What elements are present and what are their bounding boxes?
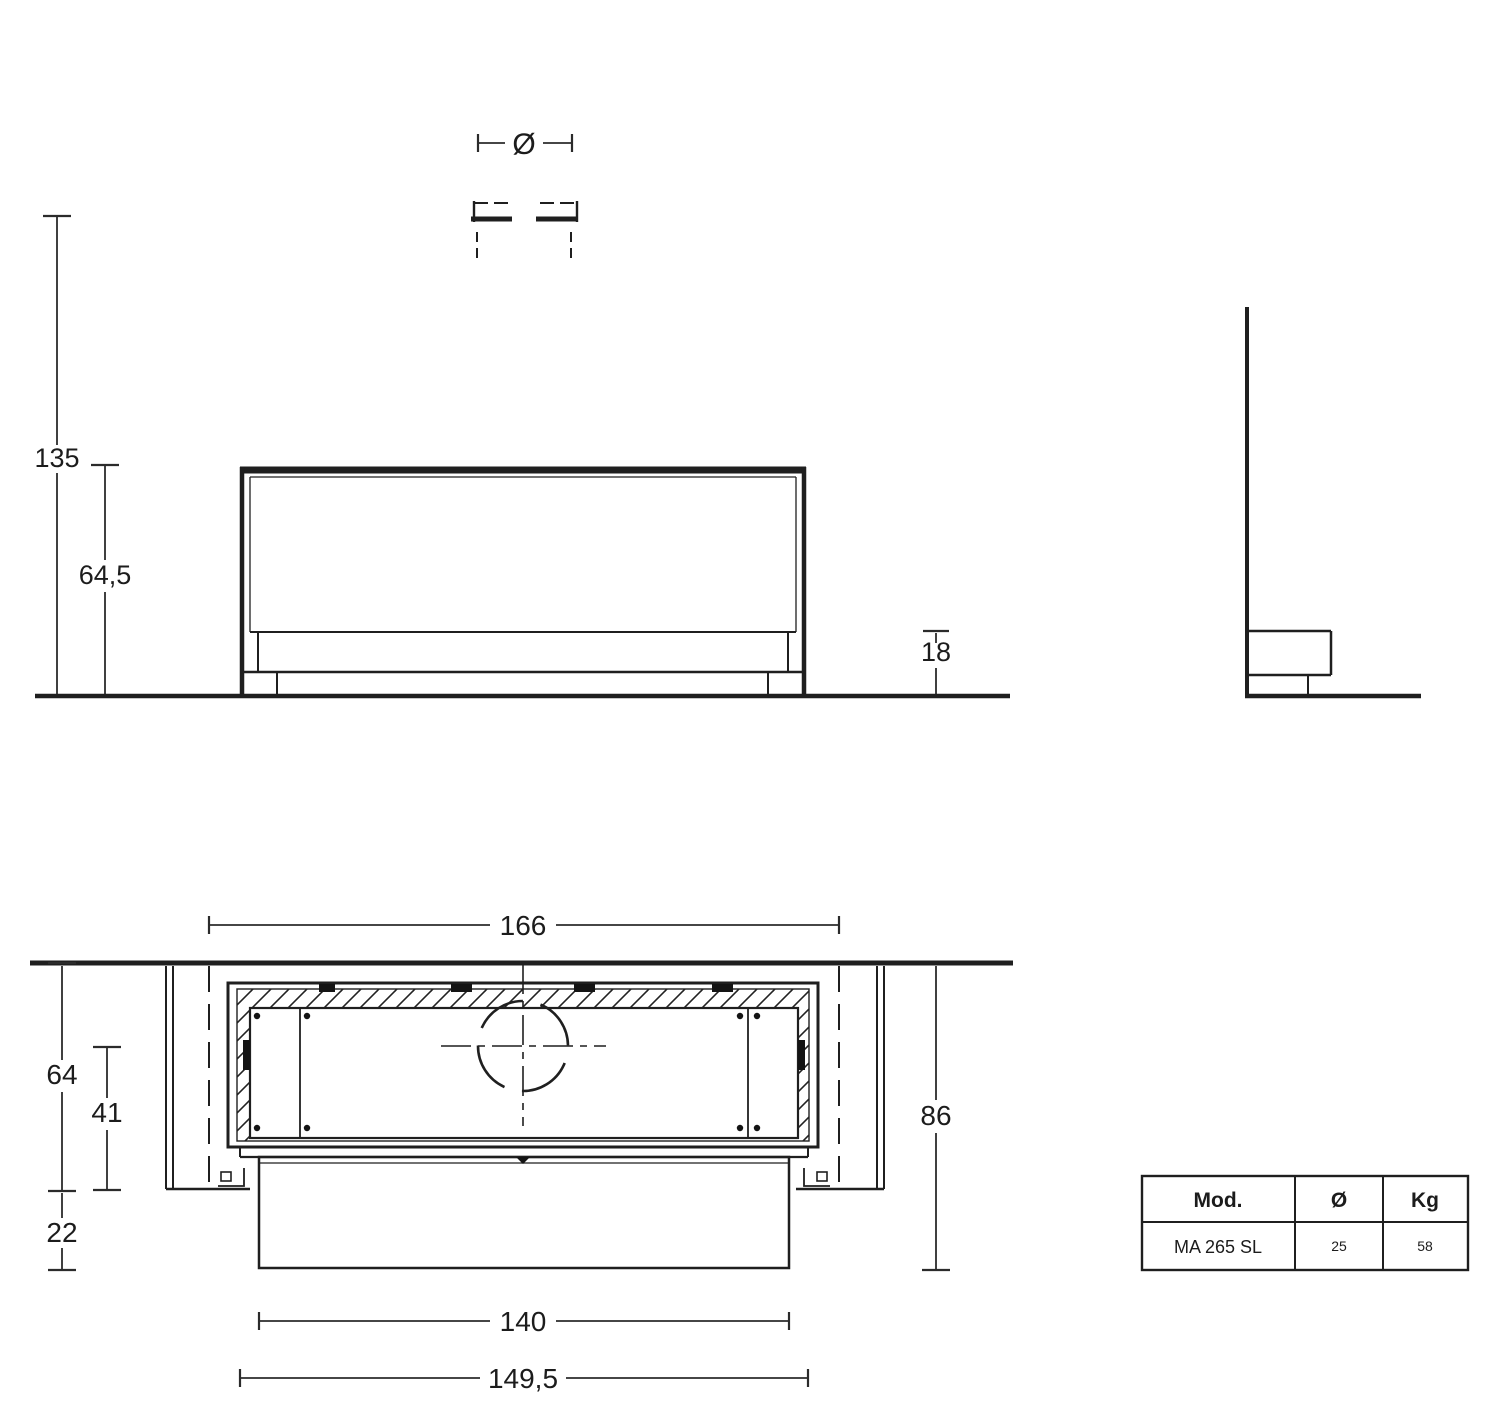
anchor-bracket-left bbox=[218, 1168, 244, 1186]
side-burner-box bbox=[1247, 631, 1331, 694]
dim-ceiling-height: 135 bbox=[34, 216, 79, 695]
table-header-kg: Kg bbox=[1411, 1189, 1439, 1212]
plan-view: 166 bbox=[30, 910, 1013, 1394]
table-cell-model: MA 265 SL bbox=[1174, 1237, 1262, 1257]
technical-drawing-page: Ø 135 64,5 bbox=[0, 0, 1500, 1427]
dim-unit-height: 64,5 bbox=[79, 465, 132, 695]
dim-recess-depth: 64 bbox=[46, 963, 77, 1191]
dim-total-depth-label: 86 bbox=[920, 1100, 951, 1131]
dim-total-depth: 86 bbox=[920, 966, 951, 1270]
dim-flue-diameter: Ø bbox=[478, 128, 572, 161]
table-cell-kg: 58 bbox=[1417, 1238, 1433, 1254]
dim-recess-depth-label: 64 bbox=[46, 1059, 77, 1090]
dim-frame-width: 149,5 bbox=[240, 1363, 808, 1394]
spec-table: Mod. Ø Kg MA 265 SL 25 58 bbox=[1142, 1176, 1468, 1270]
drawing-canvas: Ø 135 64,5 bbox=[0, 0, 1500, 1427]
dim-recess-width: 166 bbox=[209, 910, 839, 941]
plan-unit-body bbox=[218, 964, 830, 1268]
dim-front-protrusion-label: 22 bbox=[46, 1217, 77, 1248]
flue-diameter-label: Ø bbox=[512, 128, 535, 161]
front-unit-outline bbox=[240, 467, 806, 695]
anchor-bracket-right bbox=[804, 1168, 830, 1186]
dim-frame-width-label: 149,5 bbox=[488, 1363, 558, 1394]
side-elevation-view bbox=[1245, 307, 1421, 697]
front-elevation-view: 135 64,5 bbox=[34, 216, 1010, 696]
insulation-hatch-left bbox=[237, 1008, 250, 1141]
firebox-interior bbox=[250, 1008, 798, 1138]
table-cell-diameter: 25 bbox=[1331, 1238, 1347, 1254]
dim-unit-height-label: 64,5 bbox=[79, 560, 132, 590]
flue-spigot-symbol: Ø bbox=[471, 128, 577, 258]
dim-plinth-height-label: 18 bbox=[921, 637, 951, 667]
dim-inner-depth: 41 bbox=[91, 1047, 122, 1190]
table-header-diameter: Ø bbox=[1331, 1189, 1347, 1212]
latch-tab-left bbox=[243, 1040, 250, 1070]
flue-spigot-outline bbox=[471, 201, 577, 258]
latch-tab-right bbox=[798, 1040, 805, 1070]
dim-recess-width-label: 166 bbox=[500, 910, 547, 941]
dim-front-panel-width-label: 140 bbox=[500, 1306, 547, 1337]
front-panel bbox=[259, 1157, 789, 1268]
dim-front-panel-width: 140 bbox=[259, 1306, 789, 1337]
table-header-mod: Mod. bbox=[1194, 1189, 1243, 1212]
dim-ceiling-height-label: 135 bbox=[34, 443, 79, 473]
dim-front-protrusion: 22 bbox=[46, 1193, 77, 1270]
dim-plinth-height: 18 bbox=[921, 631, 951, 695]
dim-inner-depth-label: 41 bbox=[91, 1097, 122, 1128]
